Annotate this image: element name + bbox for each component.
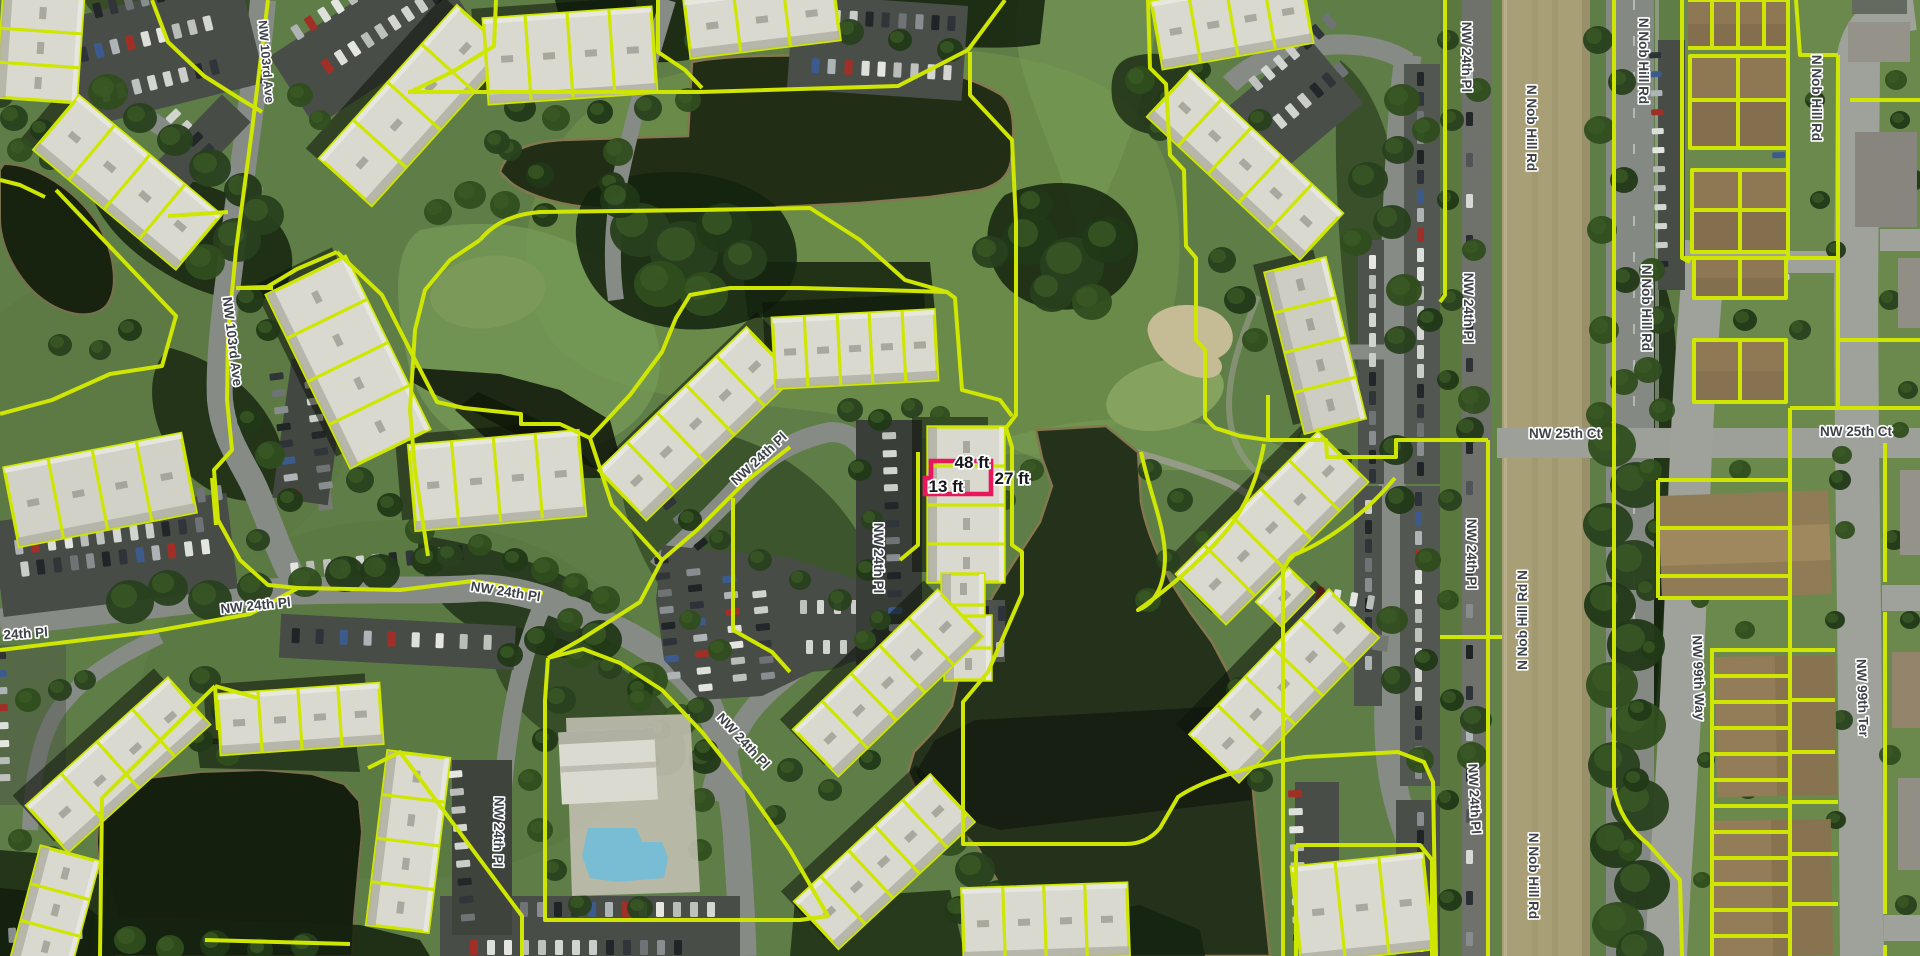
svg-text:24th Pl: 24th Pl <box>3 624 48 642</box>
svg-text:NW 24th Pl: NW 24th Pl <box>1459 22 1474 93</box>
svg-text:N Nob Hill Rd: N Nob Hill Rd <box>1639 265 1654 351</box>
svg-text:N Nob Hill Rd: N Nob Hill Rd <box>1524 85 1539 171</box>
svg-text:13 ft: 13 ft <box>929 477 964 496</box>
svg-text:NW 24th Pl: NW 24th Pl <box>1461 273 1476 344</box>
svg-text:N Nob Hill Rd: N Nob Hill Rd <box>1636 18 1651 104</box>
svg-text:NW 24th Pl: NW 24th Pl <box>1464 519 1479 590</box>
svg-text:27 ft: 27 ft <box>995 469 1030 488</box>
svg-text:NW 24th Pl: NW 24th Pl <box>871 523 886 594</box>
svg-text:48 ft: 48 ft <box>955 453 990 472</box>
svg-text:NW 25th Ct: NW 25th Ct <box>1820 424 1893 439</box>
svg-text:NW 99th Ter: NW 99th Ter <box>1854 659 1872 738</box>
svg-text:NW 25th Ct: NW 25th Ct <box>1529 426 1602 441</box>
svg-text:N Nob Hill Rd: N Nob Hill Rd <box>1809 55 1824 141</box>
svg-text:NW 24th Pl: NW 24th Pl <box>490 797 506 868</box>
svg-text:N Nob Hill Rd: N Nob Hill Rd <box>1526 833 1541 919</box>
svg-text:NW 99th Way: NW 99th Way <box>1690 635 1708 721</box>
svg-text:N Nob Hill Rd N: N Nob Hill Rd N <box>1515 570 1530 670</box>
